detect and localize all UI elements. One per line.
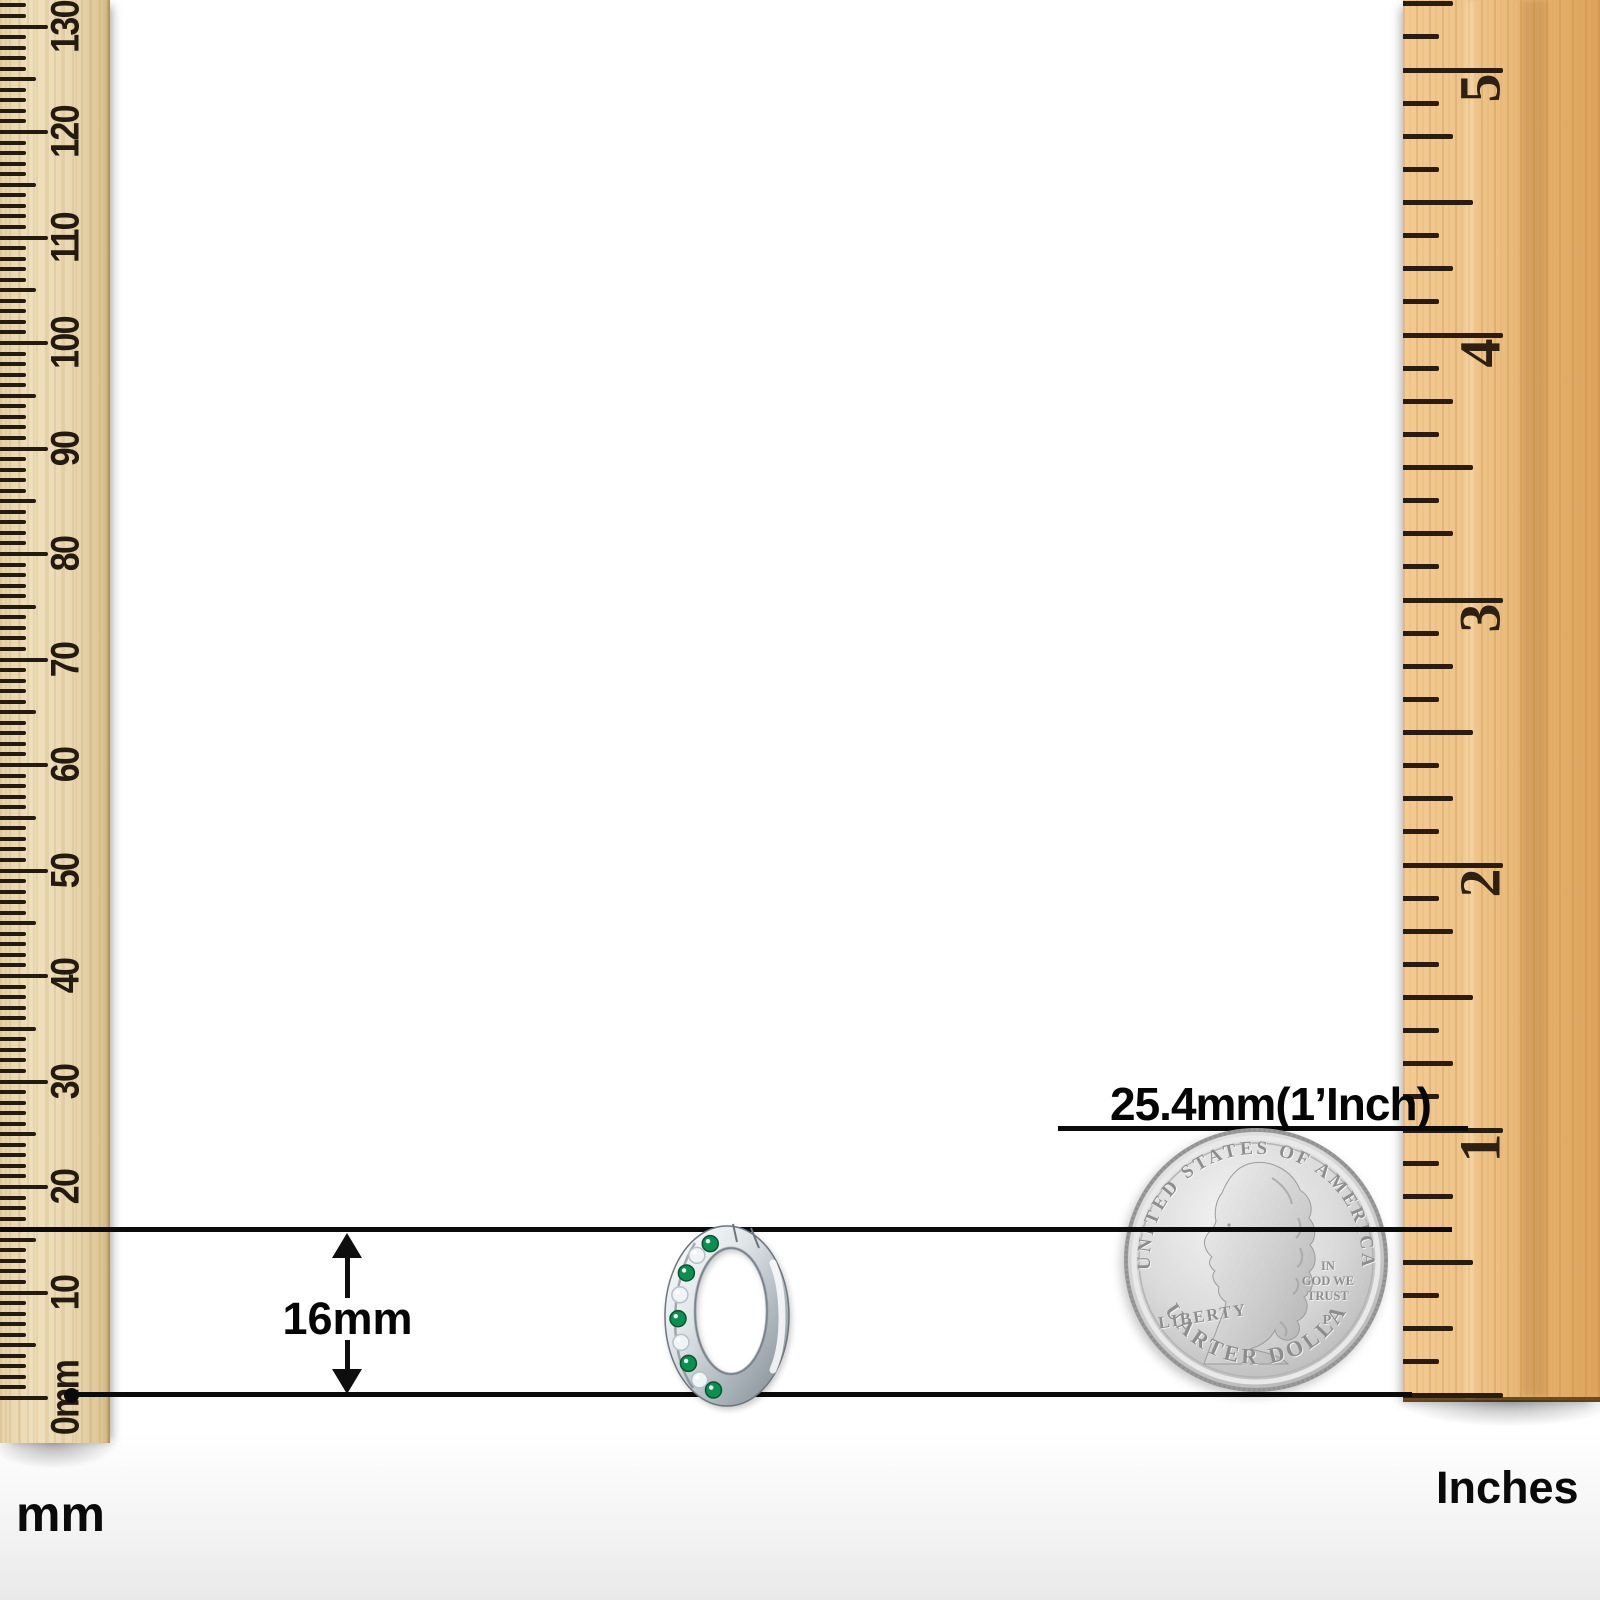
inches-unit-label: Inches (1436, 1462, 1579, 1514)
mm-tick (0, 1111, 26, 1115)
mm-ruler-shadow (0, 1443, 118, 1469)
mm-tick (0, 309, 26, 313)
crystal-stone (673, 1334, 689, 1350)
jewelry-size-chart: 0mm102030405060708090100110120130 12345 (0, 0, 1600, 1600)
mm-ruler-number: 60 (44, 748, 89, 782)
mm-tick (0, 288, 36, 292)
mm-tick (0, 246, 26, 250)
mm-tick (0, 278, 26, 282)
mm-tick (0, 499, 36, 503)
mm-tick (0, 858, 26, 862)
mm-tick (0, 626, 26, 630)
mm-tick (0, 869, 48, 873)
mm-tick (0, 77, 36, 81)
mm-tick (0, 130, 48, 134)
inch-tick (1403, 796, 1453, 801)
inch-tick (1403, 929, 1453, 934)
mm-tick (0, 837, 26, 841)
mm-tick (0, 742, 26, 746)
arrow-head-down (332, 1369, 362, 1394)
inch-tick (1403, 1393, 1503, 1398)
emerald-stone (705, 1382, 721, 1398)
inch-tick (1403, 1194, 1453, 1199)
inch-tick (1403, 1293, 1439, 1298)
emerald-stone (702, 1236, 718, 1252)
inch-tick (1403, 498, 1439, 503)
arrow-shaft-up (345, 1254, 350, 1298)
inch-tick (1403, 631, 1439, 636)
mm-tick (0, 25, 48, 29)
mm-tick (0, 425, 26, 429)
inch-ruler-number: 2 (1447, 869, 1514, 898)
crystal-stone (672, 1287, 688, 1303)
mm-tick (0, 721, 26, 725)
inch-tick (1403, 531, 1453, 536)
mm-ruler-number: 40 (44, 959, 89, 993)
mm-tick (0, 879, 26, 883)
inch-reference-label: 25.4mm(1’Inch) (1110, 1077, 1420, 1131)
inch-tick (1403, 1326, 1453, 1331)
mm-tick (0, 805, 26, 809)
stone-sparkle (684, 1359, 688, 1363)
inch-tick (1403, 697, 1439, 702)
earring-inner-shading (695, 1248, 767, 1374)
mm-tick (0, 510, 26, 514)
mm-tick (0, 1364, 26, 1368)
coin-motto-3: TRUST (1307, 1289, 1349, 1303)
mm-tick (0, 953, 26, 957)
mm-tick (0, 985, 26, 989)
crystal-stone (689, 1247, 705, 1263)
coin-motto-1: IN (1321, 1259, 1335, 1273)
mm-tick (0, 900, 26, 904)
mm-tick (0, 373, 26, 377)
wood-grain-band (1521, 0, 1547, 1397)
mm-tick (0, 763, 48, 767)
mm-tick (0, 1238, 36, 1242)
mm-tick (0, 689, 26, 693)
inch-ruler-number: 3 (1447, 604, 1514, 633)
inch-tick (1403, 730, 1473, 735)
inch-tick (1403, 366, 1439, 371)
stone-sparkle (676, 1338, 680, 1342)
mm-ruler-number: 50 (44, 853, 89, 887)
mm-tick (0, 1101, 26, 1105)
crystal-stone (692, 1372, 708, 1388)
inch-tick (1403, 465, 1473, 470)
inch-tick (1403, 1061, 1453, 1066)
mm-tick (0, 1301, 26, 1305)
inch-tick (1403, 399, 1453, 404)
mm-tick (0, 299, 26, 303)
mm-tick (0, 1122, 26, 1126)
mm-tick (0, 710, 36, 714)
mm-tick (0, 151, 26, 155)
mm-tick (0, 383, 26, 387)
mm-tick (0, 615, 26, 619)
mm-tick (0, 404, 26, 408)
mm-tick (0, 468, 26, 472)
inch-tick (1403, 664, 1453, 669)
mm-tick (0, 362, 26, 366)
mm-tick (0, 573, 26, 577)
mm-ruler-number: 10 (44, 1275, 89, 1309)
mm-tick (0, 1196, 26, 1200)
mm-tick (0, 352, 26, 356)
mm-tick (0, 774, 26, 778)
inch-tick (1403, 1359, 1439, 1364)
inch-tick (1403, 101, 1439, 106)
mm-tick (0, 1153, 26, 1157)
inch-tick (1403, 995, 1473, 1000)
inch-tick (1403, 598, 1503, 603)
mm-tick (0, 1385, 26, 1389)
mm-tick (0, 1248, 26, 1252)
mm-ruler-number: 110 (44, 213, 89, 263)
mm-tick (0, 1375, 26, 1379)
mm-tick (0, 658, 48, 662)
mm-tick (0, 1058, 26, 1062)
mm-tick (0, 415, 26, 419)
coin-motto-2: GOD WE (1302, 1274, 1354, 1288)
mm-tick (0, 489, 26, 493)
mm-tick (0, 56, 26, 60)
mm-tick (0, 731, 26, 735)
mm-tick (0, 552, 48, 556)
stone-sparkle (675, 1290, 679, 1294)
mm-tick (0, 1185, 48, 1189)
mm-tick (0, 1164, 26, 1168)
mm-tick (0, 942, 26, 946)
inch-tick (1403, 896, 1439, 901)
arrow-head-up (332, 1233, 362, 1258)
inch-tick (1403, 167, 1439, 172)
mm-tick (0, 563, 26, 567)
mm-tick (0, 183, 36, 187)
stone-sparkle (692, 1251, 696, 1255)
mm-tick (0, 995, 26, 999)
mm-tick (0, 257, 26, 261)
mm-tick (0, 1037, 26, 1041)
inch-tick (1403, 432, 1439, 437)
mm-tick (0, 1006, 26, 1010)
mm-tick (0, 605, 36, 609)
inch-tick (1403, 333, 1503, 338)
mm-tick (0, 193, 26, 197)
mm-tick (0, 35, 26, 39)
mm-tick (0, 1280, 26, 1284)
mm-tick (0, 267, 26, 271)
mm-tick (0, 679, 26, 683)
mm-tick (0, 204, 26, 208)
inch-ruler-shadow (1398, 1400, 1600, 1426)
mm-tick (0, 847, 26, 851)
mm-tick (0, 826, 26, 830)
mm-ruler-number: 130 (44, 1, 89, 53)
mm-tick (0, 531, 26, 535)
mm-ruler-number: 30 (44, 1064, 89, 1098)
mm-tick (0, 141, 26, 145)
mm-tick (0, 447, 48, 451)
inch-tick (1403, 134, 1453, 139)
mm-tick (0, 1354, 26, 1358)
size-label: 16mm (240, 1293, 455, 1345)
mm-tick (0, 1174, 26, 1178)
mm-tick (0, 784, 26, 788)
stone-sparkle (674, 1314, 678, 1318)
mm-tick (0, 1217, 26, 1221)
wood-grain-highlight (1465, 0, 1475, 1397)
inch-tick (1403, 564, 1439, 569)
mm-tick (0, 98, 26, 102)
mm-ruler-number: 70 (44, 642, 89, 676)
stone-sparkle (706, 1239, 710, 1243)
stone-sparkle (695, 1375, 699, 1379)
mm-ruler-number: 100 (44, 317, 89, 369)
mm-tick (0, 330, 26, 334)
hoop-earring (655, 1218, 795, 1414)
inch-tick (1403, 1260, 1473, 1265)
background-gradient (0, 1430, 1600, 1600)
mm-tick (0, 1269, 26, 1273)
inch-tick (1403, 1161, 1439, 1166)
stone-sparkle (709, 1385, 713, 1389)
mm-tick (0, 1259, 26, 1263)
mm-tick (0, 541, 26, 545)
inch-ruler: 12345 (1403, 0, 1600, 1402)
mm-tick (0, 1048, 26, 1052)
inch-ruler-number: 4 (1447, 339, 1514, 368)
inch-tick (1403, 1028, 1439, 1033)
mm-tick (0, 932, 26, 936)
mm-tick (0, 1132, 36, 1136)
mm-tick (0, 320, 26, 324)
mm-tick (0, 478, 26, 482)
mm-tick (0, 752, 26, 756)
inch-tick (1403, 299, 1439, 304)
mm-tick (0, 225, 26, 229)
mm-tick (0, 1143, 26, 1147)
inch-ruler-number: 5 (1447, 74, 1514, 103)
mm-tick (0, 236, 48, 240)
mm-tick (0, 1343, 36, 1347)
mm-tick (0, 636, 26, 640)
inch-tick (1403, 863, 1503, 868)
mm-ruler-number: 20 (44, 1170, 89, 1204)
mm-tick (0, 46, 26, 50)
mm-tick (0, 394, 36, 398)
inch-tick (1403, 34, 1439, 39)
mm-tick (0, 67, 26, 71)
mm-ruler-number: 80 (44, 537, 89, 571)
inch-tick (1403, 266, 1453, 271)
emerald-stone (670, 1311, 686, 1327)
mm-tick (0, 700, 26, 704)
inch-tick (1403, 1, 1453, 6)
mm-tick (0, 1069, 26, 1073)
stone-sparkle (682, 1268, 686, 1272)
quarter-coin: UNITED STATES OF AMERICA QUARTER DOLLAR … (1122, 1126, 1390, 1394)
mm-tick (0, 974, 48, 978)
mm-tick (0, 584, 26, 588)
inch-tick (1403, 200, 1473, 205)
mm-tick (0, 457, 26, 461)
mm-tick (0, 963, 26, 967)
mm-tick (0, 1333, 26, 1337)
mm-tick (0, 520, 26, 524)
inch-tick (1403, 962, 1439, 967)
mm-tick (0, 1027, 36, 1031)
inch-tick (1403, 829, 1439, 834)
inch-tick (1403, 68, 1503, 73)
mm-tick (0, 647, 26, 651)
mm-tick (0, 14, 26, 18)
mm-tick (0, 911, 26, 915)
mm-tick (0, 436, 26, 440)
mm-tick (0, 1322, 26, 1326)
mm-tick (0, 1090, 26, 1094)
mm-tick (0, 162, 26, 166)
inch-ruler-number: 1 (1447, 1134, 1514, 1163)
mm-tick (0, 172, 26, 176)
mm-tick (0, 668, 26, 672)
mm-tick (0, 119, 26, 123)
mm-tick (0, 1206, 26, 1210)
mm-tick (0, 88, 26, 92)
mm-tick (0, 1312, 26, 1316)
mm-tick (0, 214, 26, 218)
emerald-stone (678, 1265, 694, 1281)
mm-tick (0, 3, 26, 7)
mm-ruler-number: 120 (44, 106, 89, 158)
mm-tick (0, 341, 48, 345)
zero-baseline-dot (64, 1388, 79, 1403)
mm-tick (0, 1396, 48, 1400)
inch-tick (1403, 233, 1439, 238)
mm-unit-label: mm (16, 1485, 105, 1543)
inch-tick (1403, 763, 1439, 768)
mm-tick (0, 1080, 48, 1084)
coin-mint-mark: P (1323, 1313, 1332, 1328)
mm-tick (0, 890, 26, 894)
mm-tick (0, 921, 36, 925)
mm-tick (0, 594, 26, 598)
mm-tick (0, 1016, 26, 1020)
emerald-stone (680, 1355, 696, 1371)
mm-tick (0, 816, 36, 820)
mm-ruler-number: 90 (44, 431, 89, 465)
mm-tick (0, 1291, 48, 1295)
mm-tick (0, 109, 26, 113)
mm-tick (0, 795, 26, 799)
